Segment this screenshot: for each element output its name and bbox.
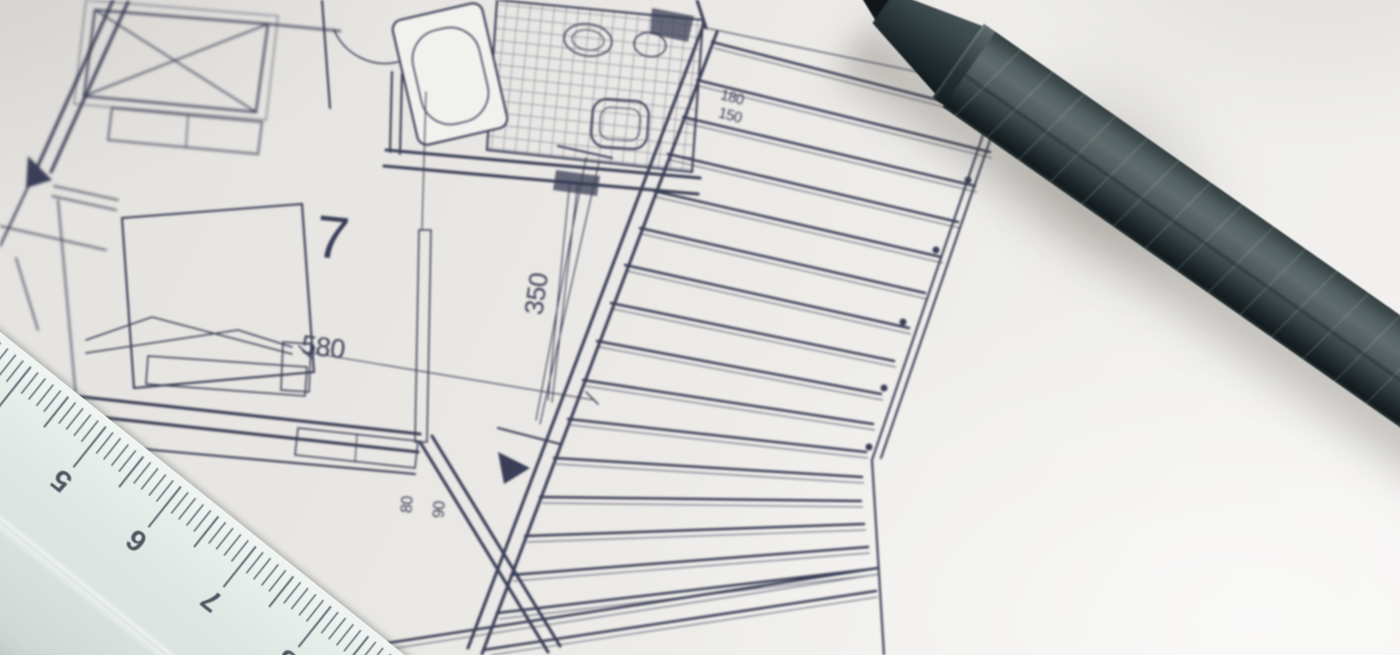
photo-scene: 7 580 350 180 150 80 90 4 5 6 7 8 [0,0,1400,655]
bathroom [384,0,706,196]
dimension-580-label: 580 [300,330,347,365]
dimension-90-label: 90 [430,500,448,519]
skylight-square [74,0,340,154]
door-arc [322,0,402,154]
radiator [415,230,431,442]
zigzag-brace [86,317,292,354]
room-7 [70,92,431,474]
bathtub [391,1,509,146]
dimension-350-label: 350 [518,271,554,317]
dimension-80-label: 80 [398,495,416,514]
left-wall [0,0,128,398]
room-number-label: 7 [312,203,352,273]
